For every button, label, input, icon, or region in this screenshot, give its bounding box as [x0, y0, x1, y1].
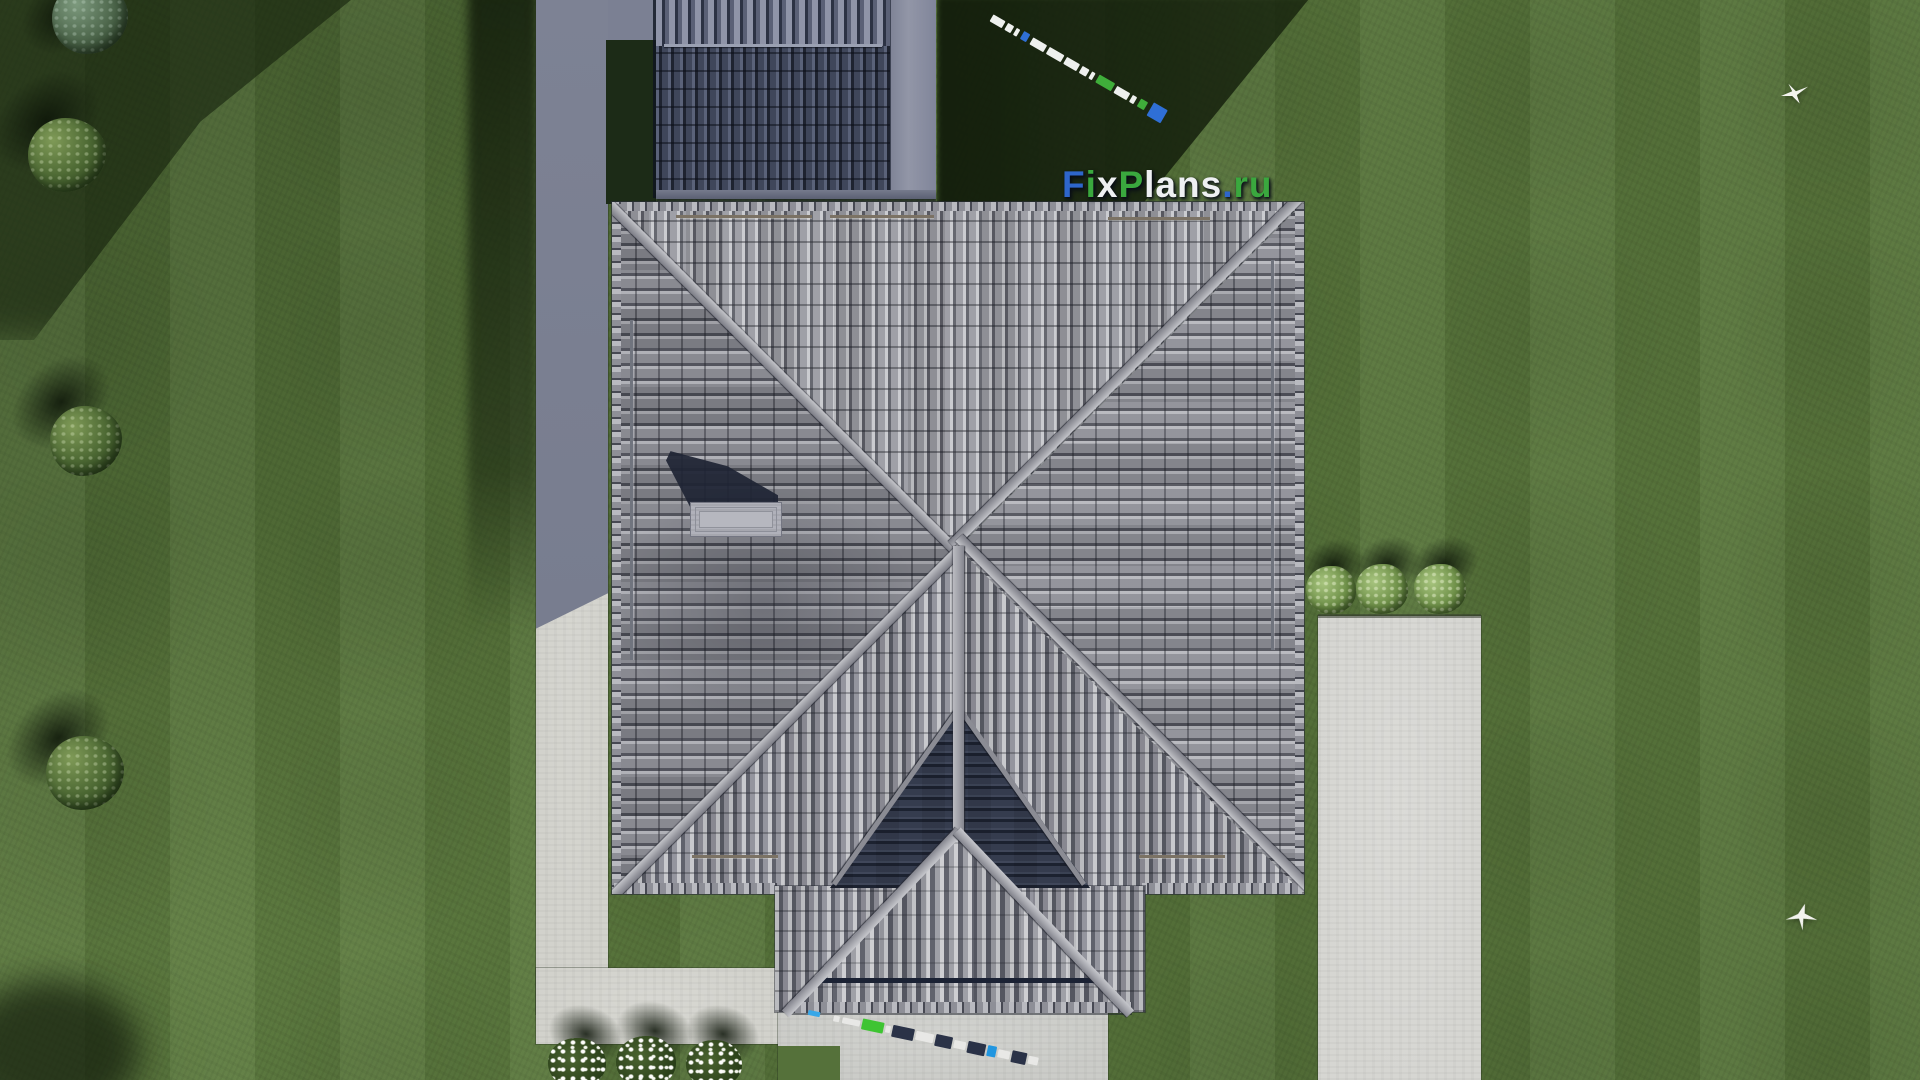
mark-segment: [986, 1045, 997, 1058]
eave-south-left: [614, 883, 778, 894]
snow-guard: [630, 320, 633, 660]
watermark-segment: x: [1097, 164, 1119, 205]
watermark-segment: lans: [1144, 164, 1222, 205]
bush: [1356, 564, 1408, 614]
mark-segment: [1137, 99, 1148, 111]
mark-segment: [915, 1031, 934, 1044]
mark-segment: [953, 1040, 966, 1050]
driveway-edge-shadow: [1318, 614, 1481, 618]
mark-segment: [990, 14, 1006, 28]
annex-eave: [656, 190, 936, 199]
flower-bush: [686, 1040, 742, 1080]
house-shadow-left: [468, 0, 538, 630]
shadow-grass-notch: [606, 40, 656, 204]
mark-segment: [891, 1025, 915, 1041]
mark-segment: [1020, 31, 1031, 42]
mark-segment: [1046, 47, 1065, 62]
mark-segment: [1010, 1050, 1027, 1065]
mark-segment: [808, 1010, 821, 1017]
mark-segment: [1129, 95, 1137, 104]
mark-segment: [1029, 37, 1047, 52]
flower-bush: [548, 1038, 606, 1080]
eave-east: [1295, 204, 1304, 892]
grass-corner: [778, 1046, 840, 1080]
mark-segment: [1095, 75, 1115, 92]
mark-segment: [842, 1017, 861, 1027]
path-left-shadow: [536, 0, 608, 1014]
annex-roof-eave-tiles: [656, 0, 890, 46]
snow-guard: [692, 855, 778, 858]
chimney-cap: [699, 511, 773, 528]
snow-guard: [1271, 260, 1274, 650]
snow-guard: [1139, 855, 1225, 858]
bird-icon: [1780, 82, 1810, 113]
path-top-patch: [608, 0, 660, 42]
mark-segment: [997, 1049, 1010, 1059]
watermark-segment: i: [1086, 164, 1097, 205]
snow-guard: [830, 215, 934, 218]
mark-segment: [1013, 28, 1020, 37]
driveway: [1318, 616, 1481, 1080]
mark-segment: [1027, 1055, 1038, 1065]
bush: [1306, 566, 1356, 614]
chimney: [690, 502, 782, 537]
annex-side-frame: [890, 0, 936, 198]
mark-segment: [885, 1026, 891, 1034]
mark-segment: [966, 1041, 986, 1056]
mark-segment: [1079, 66, 1090, 77]
mark-segment: [934, 1034, 953, 1049]
mark-segment: [1113, 86, 1130, 100]
mark-segment: [1088, 71, 1095, 80]
porch-shadow-line: [822, 978, 1098, 983]
aerial-site-render: FixPlans.ru: [0, 0, 1920, 1080]
annex-snow-guard: [664, 44, 882, 47]
watermark: FixPlans.ru: [1062, 164, 1272, 206]
snow-guard: [1108, 217, 1210, 220]
eave-south-right: [1142, 883, 1302, 894]
watermark-segment: P: [1118, 164, 1144, 205]
snow-guard: [676, 215, 812, 218]
bush: [1414, 564, 1466, 614]
mark-segment: [861, 1019, 885, 1034]
watermark-segment: F: [1062, 164, 1086, 205]
path-left: [536, 0, 608, 1014]
porch-ridge: [953, 546, 964, 836]
eave-west: [612, 204, 621, 892]
mark-segment: [1004, 23, 1014, 33]
flower-bush: [616, 1036, 676, 1080]
watermark-segment: .: [1222, 164, 1233, 205]
mark-segment: [833, 1015, 840, 1022]
mark-segment: [1063, 57, 1080, 71]
watermark-segment: ru: [1233, 164, 1272, 205]
